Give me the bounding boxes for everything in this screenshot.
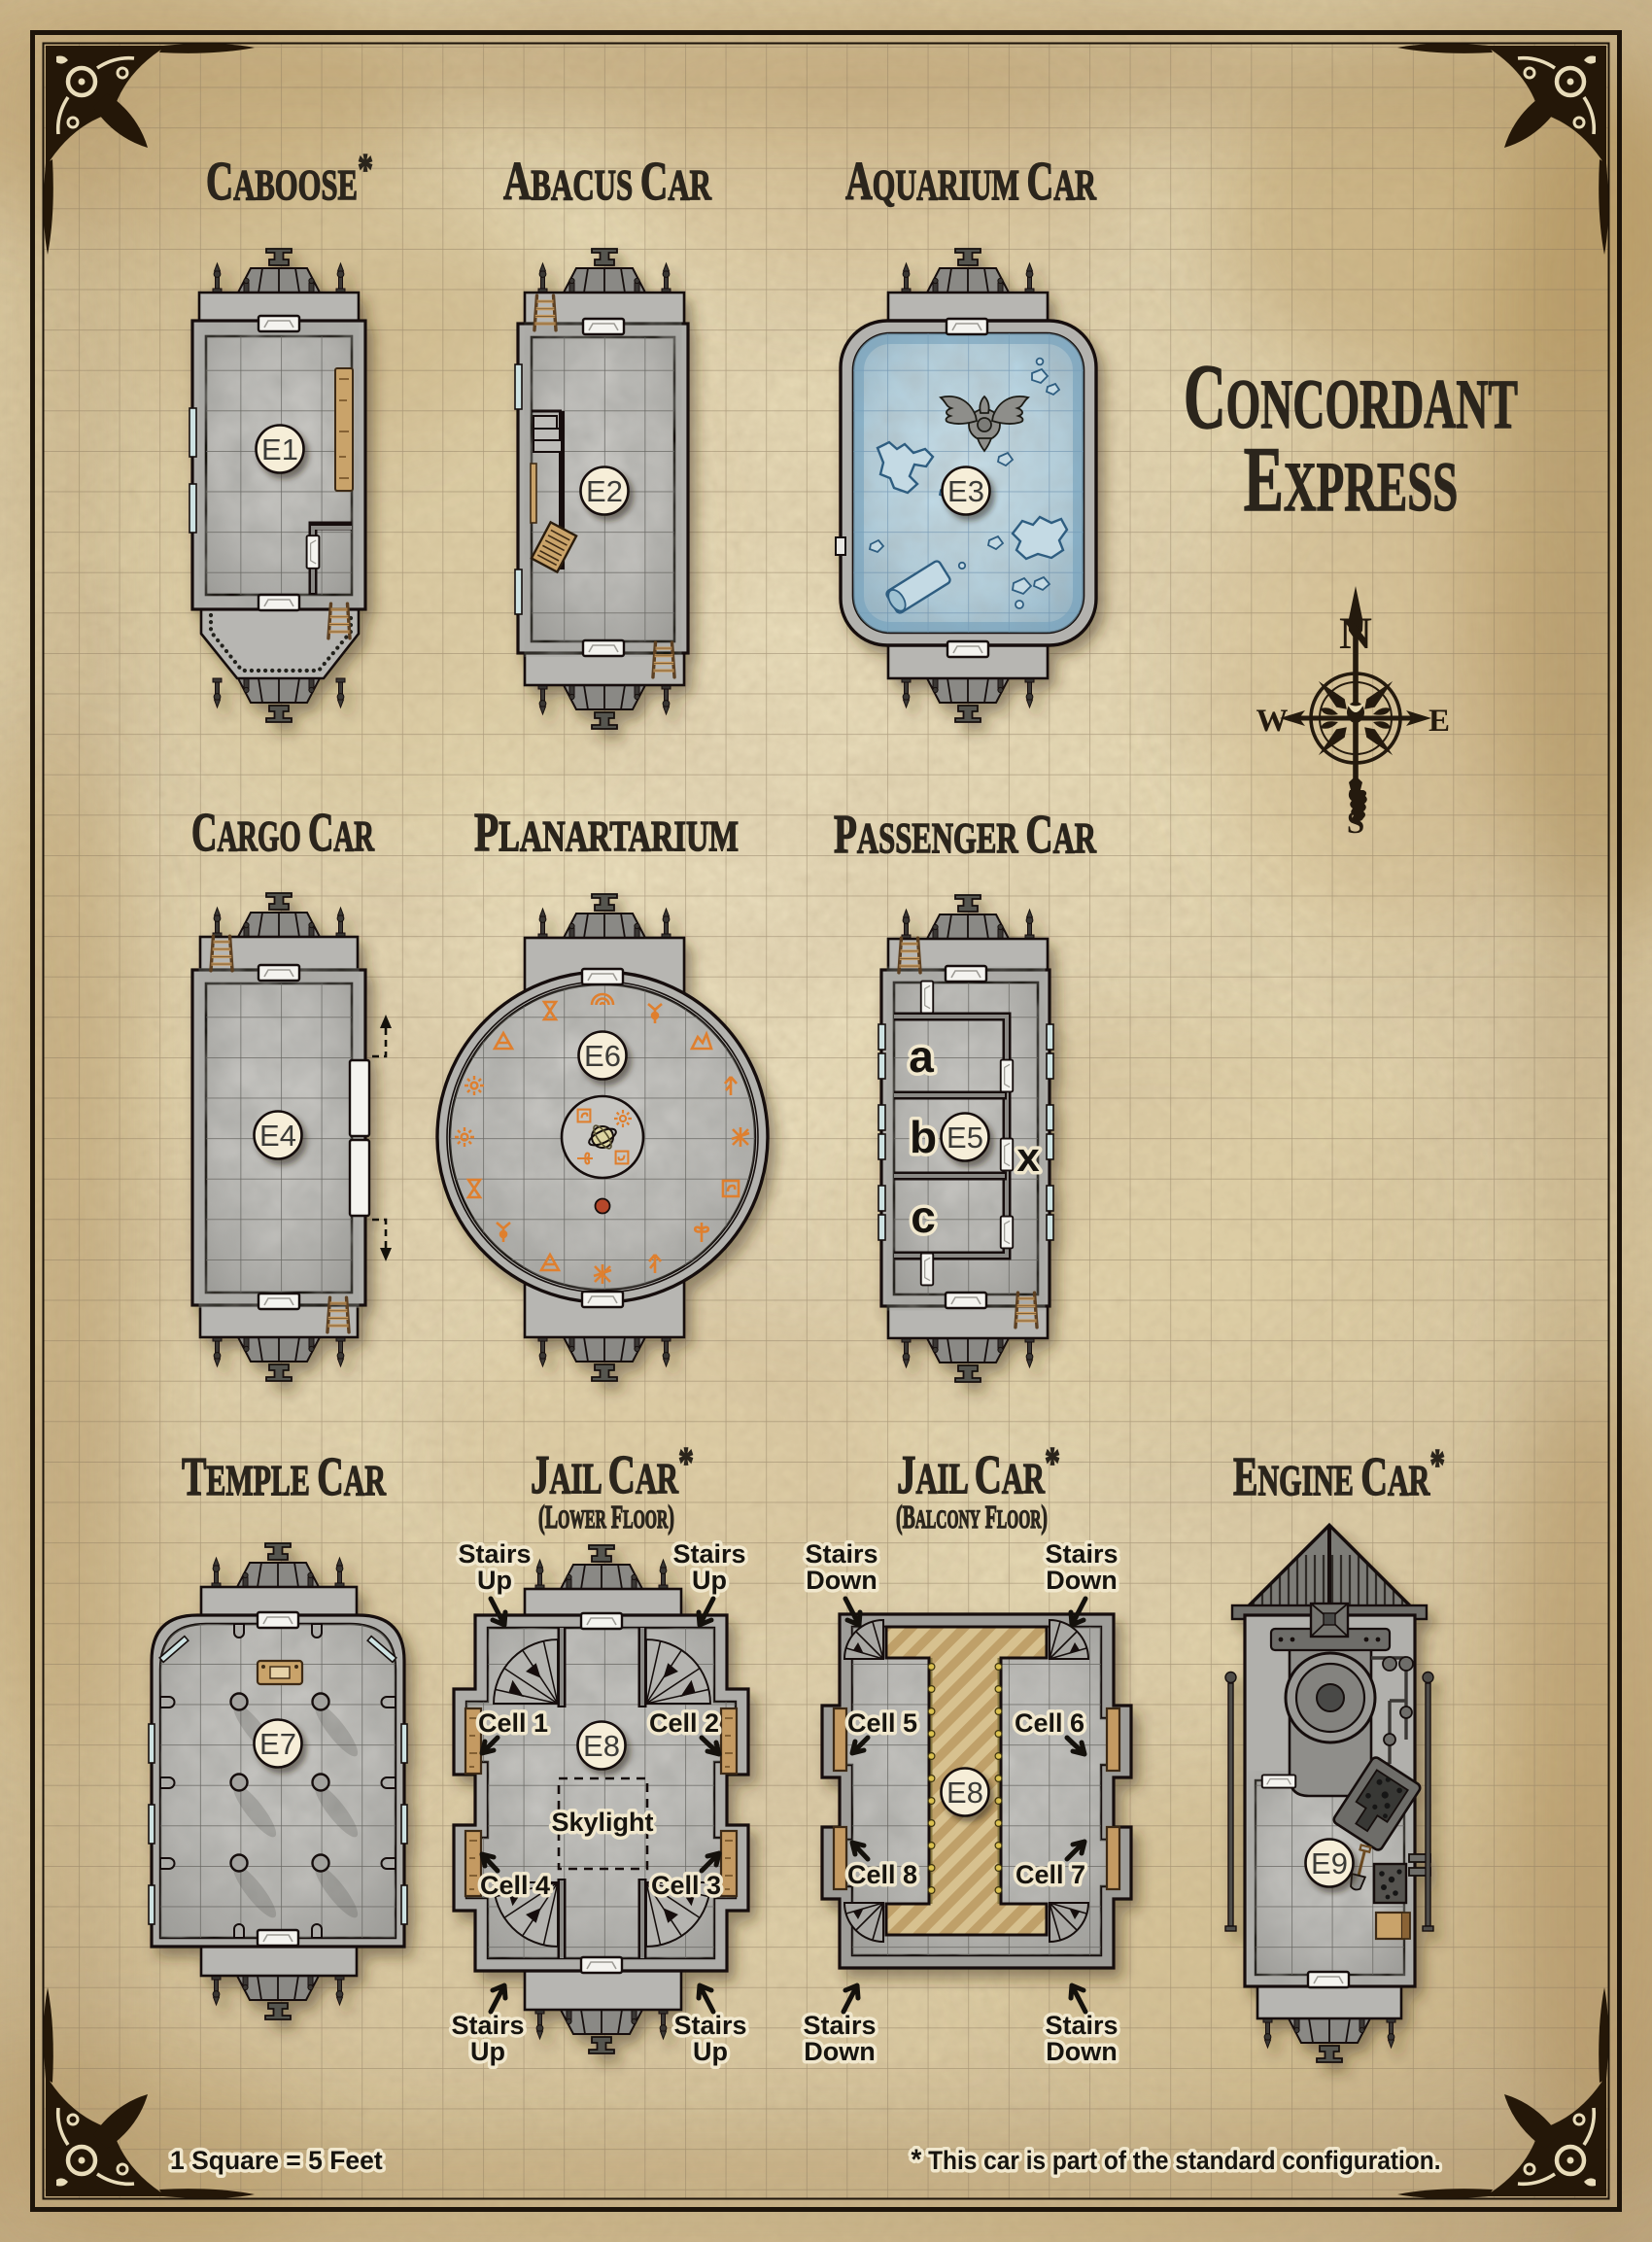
svg-text:W: W <box>1256 704 1289 739</box>
svg-text:Cell 6: Cell 6 <box>1015 1708 1084 1738</box>
svg-text:Up: Up <box>693 2037 728 2066</box>
svg-text:(LOWER FLOOR): (LOWER FLOOR) <box>538 1500 674 1535</box>
svg-text:E5: E5 <box>946 1121 983 1155</box>
svg-text:Stairs: Stairs <box>1045 2011 1118 2040</box>
svg-text:Stairs: Stairs <box>1045 1539 1118 1569</box>
svg-text:Down: Down <box>806 1566 878 1595</box>
svg-text:AQUARIUM CAR: AQUARIUM CAR <box>845 152 1097 212</box>
svg-text:E1: E1 <box>261 432 298 466</box>
svg-text:ABACUS CAR: ABACUS CAR <box>503 152 712 212</box>
svg-text:Down: Down <box>804 2037 876 2066</box>
svg-text:E9: E9 <box>1311 1846 1348 1880</box>
svg-text:Cell 7: Cell 7 <box>1015 1860 1085 1889</box>
svg-text:b: b <box>910 1112 937 1162</box>
svg-text:Stairs: Stairs <box>672 1539 745 1569</box>
svg-text:* This car is part of the sta: * This car is part of the standard confi… <box>912 2144 1441 2176</box>
svg-text:E6: E6 <box>584 1039 621 1073</box>
svg-text:Down: Down <box>1046 1566 1118 1595</box>
svg-text:Up: Up <box>692 1566 727 1595</box>
svg-text:Stairs: Stairs <box>673 2011 746 2040</box>
svg-text:PASSENGER CAR: PASSENGER CAR <box>834 805 1097 865</box>
svg-text:N: N <box>1339 608 1372 659</box>
svg-text:Cell 4: Cell 4 <box>480 1871 550 1900</box>
svg-text:E4: E4 <box>259 1119 296 1153</box>
svg-text:CARGO CAR: CARGO CAR <box>191 803 375 863</box>
svg-text:Stairs: Stairs <box>451 2011 524 2040</box>
svg-text:Up: Up <box>477 1566 512 1595</box>
svg-text:E2: E2 <box>586 474 623 508</box>
svg-text:c: c <box>911 1191 936 1242</box>
svg-text:E: E <box>1428 704 1450 739</box>
svg-text:E7: E7 <box>259 1727 296 1761</box>
svg-text:Cell 1: Cell 1 <box>478 1708 548 1738</box>
svg-text:Skylight: Skylight <box>551 1808 653 1837</box>
svg-text:Cell 8: Cell 8 <box>847 1860 917 1889</box>
svg-text:x: x <box>1016 1134 1040 1180</box>
svg-text:1 Square = 5 Feet: 1 Square = 5 Feet <box>170 2146 383 2175</box>
svg-text:Stairs: Stairs <box>458 1539 531 1569</box>
svg-text:Stairs: Stairs <box>805 1539 878 1569</box>
svg-text:a: a <box>909 1031 934 1082</box>
svg-text:TEMPLE CAR: TEMPLE CAR <box>182 1447 387 1507</box>
svg-text:Up: Up <box>470 2037 505 2066</box>
svg-text:E8: E8 <box>583 1729 620 1763</box>
svg-text:Down: Down <box>1046 2037 1118 2066</box>
svg-text:Cell 2: Cell 2 <box>649 1708 719 1738</box>
svg-text:PLANARTARIUM: PLANARTARIUM <box>474 803 739 863</box>
svg-text:S: S <box>1347 806 1364 841</box>
svg-text:Stairs: Stairs <box>803 2011 876 2040</box>
svg-text:Cell 3: Cell 3 <box>651 1871 721 1900</box>
svg-text:(BALCONY FLOOR): (BALCONY FLOOR) <box>896 1500 1048 1535</box>
svg-text:E3: E3 <box>947 474 984 508</box>
svg-text:E8: E8 <box>946 1776 983 1810</box>
svg-text:Cell 5: Cell 5 <box>847 1708 917 1738</box>
